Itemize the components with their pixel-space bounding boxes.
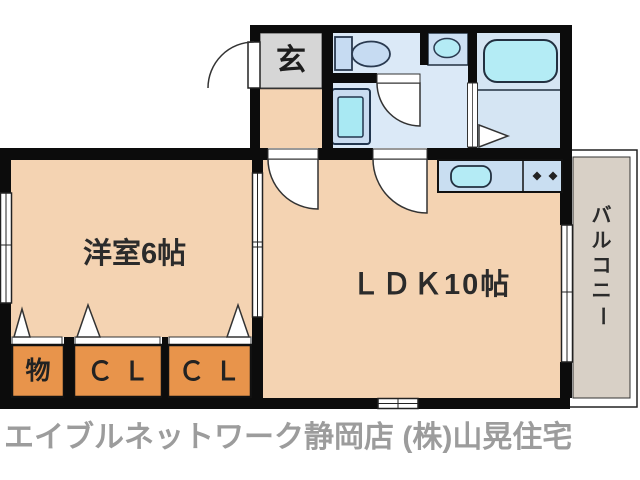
balcony-char-5: ー	[592, 306, 612, 326]
western-room-window-icon	[1, 193, 12, 303]
balcony-sliding-door-icon	[562, 225, 573, 362]
balcony-char-1: バ	[592, 206, 612, 226]
closet-2-label: ＣＬ	[168, 345, 251, 397]
entrance-door-icon	[208, 42, 260, 88]
kitchen-sink-icon	[451, 166, 491, 187]
washbasin-icon	[428, 33, 468, 65]
storage-closet-label: 物	[12, 345, 64, 397]
balcony-label: バ ル コ ニ ー	[573, 206, 630, 326]
washing-machine-icon	[332, 89, 370, 144]
closet-1-label: ＣＬ	[74, 345, 162, 397]
balcony-char-2: ル	[592, 231, 612, 251]
western-room-label: 洋室6帖	[83, 240, 186, 269]
balcony-char-4: ニ	[592, 281, 612, 301]
genkan-label: 玄	[260, 33, 322, 88]
balcony-char-3: コ	[592, 256, 612, 276]
room-divider-sliding-door-icon	[253, 173, 263, 317]
ldk-label: ＬＤＫ10帖	[351, 271, 511, 300]
ldk-south-window-icon	[378, 399, 418, 409]
agency-credit-text: エイブルネットワーク静岡店 (株)山晃住宅	[4, 423, 572, 453]
kitchen-counter	[438, 160, 562, 192]
floor-plan: 玄 洋室6帖 ＬＤＫ10帖 物 ＣＬ ＣＬ バ ル コ ニ ー エイブルネットワ…	[0, 0, 640, 480]
